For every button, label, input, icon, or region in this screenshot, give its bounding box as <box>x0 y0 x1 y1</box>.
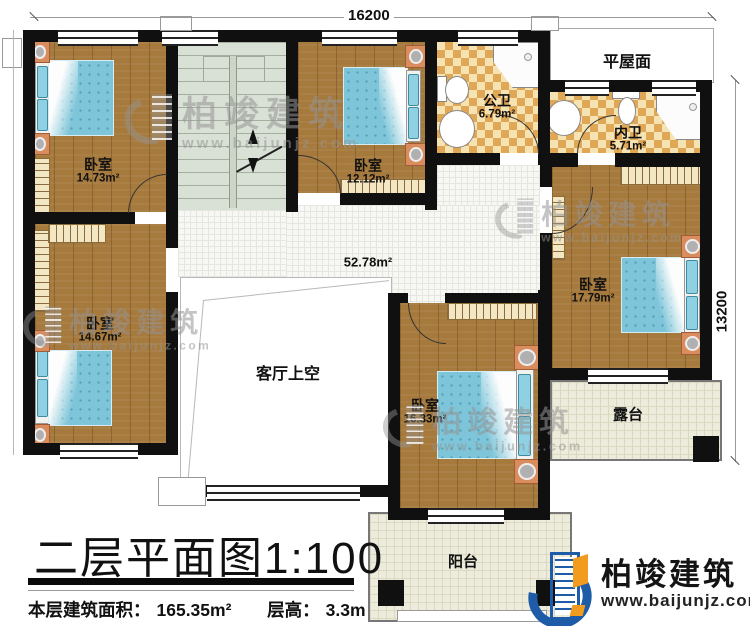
company-name: 柏竣建筑 <box>601 559 750 592</box>
room-label-bedroom-right: 卧室17.79m² <box>572 276 615 305</box>
title-rule <box>28 578 354 585</box>
flat-roof-label: 平屋面 <box>603 48 651 72</box>
room-label-bedroom-top-center: 卧室12.12m² <box>347 157 390 186</box>
pillow <box>518 374 531 414</box>
floor-height-label: 层高： <box>267 600 320 620</box>
nightstand <box>405 45 427 68</box>
bed <box>343 67 408 145</box>
wall-segment <box>388 293 400 520</box>
wall-segment <box>286 42 298 212</box>
sink-icon <box>439 110 475 148</box>
company-url: www.baijunjz.com <box>601 591 750 611</box>
pillow <box>37 379 48 417</box>
wall-segment <box>166 212 178 248</box>
wall-segment <box>445 293 550 303</box>
hallway-floor <box>437 165 540 205</box>
balcony-label: 阳台 <box>448 551 478 572</box>
stair-stringer <box>229 56 237 208</box>
bed <box>48 350 112 426</box>
window <box>458 30 518 46</box>
pillow <box>686 296 698 330</box>
wall-segment <box>286 193 298 205</box>
pillow <box>686 260 698 294</box>
wall-segment <box>340 193 437 205</box>
wardrobe <box>620 166 702 185</box>
window <box>322 30 397 46</box>
dimension-top-value: 16200 <box>344 7 394 24</box>
wall-segment <box>23 212 135 224</box>
window <box>652 80 696 96</box>
room-label-private-bath: 内卫5.71m² <box>610 124 646 153</box>
living-void-label: 客厅上空 <box>256 360 320 384</box>
company-logo: 柏竣建筑 www.baijunjz.com <box>528 552 750 618</box>
dimension-right-value: 13200 <box>713 287 730 337</box>
balcony-step <box>397 610 547 622</box>
toilet-icon <box>445 76 469 104</box>
toilet-icon <box>618 97 636 125</box>
wardrobe <box>48 224 106 243</box>
dimension-line-right <box>735 80 736 462</box>
pillow <box>408 74 419 106</box>
nightstand <box>514 459 540 484</box>
wall-segment <box>23 30 35 455</box>
floor-plan: 卧室14.73m² 卧室12.12m² 卧室14.67m² 卧室17.79m² … <box>0 0 750 626</box>
room-label-bedroom-mid-left: 卧室14.67m² <box>79 315 122 344</box>
wardrobe <box>447 303 537 320</box>
window <box>565 80 609 96</box>
room-label-bedroom-top-left: 卧室14.73m² <box>77 156 120 185</box>
window <box>60 443 138 459</box>
floor-height-value: 3.3m <box>326 600 366 620</box>
page-title: 二层平面图1:100 <box>34 522 384 586</box>
outer-line <box>13 30 14 455</box>
pillow <box>37 66 48 98</box>
wall-segment <box>166 292 178 455</box>
pillow <box>408 107 419 139</box>
wall-segment <box>540 165 552 187</box>
hallway-floor <box>178 210 286 277</box>
window <box>207 485 360 501</box>
sill-box <box>531 16 559 31</box>
wall-segment <box>540 233 552 380</box>
sill-box <box>2 38 22 68</box>
wall-segment <box>166 42 178 212</box>
window <box>58 30 138 46</box>
nightstand <box>514 345 540 370</box>
stair-arrow-down-icon <box>248 158 258 173</box>
company-logo-icon <box>528 552 592 618</box>
floor-stats: 本层建筑面积：165.35m² 层高：3.3m <box>28 597 372 622</box>
nightstand <box>405 143 427 166</box>
sliding-door <box>588 368 668 384</box>
bed <box>437 371 517 459</box>
stair-arrow-up-icon <box>248 129 258 144</box>
title-rule-thin <box>28 590 354 591</box>
sill-box <box>160 16 192 31</box>
wall-segment <box>615 153 712 167</box>
wall-segment <box>538 30 550 165</box>
terrace-label: 露台 <box>613 404 643 425</box>
hallway-floor <box>392 205 540 303</box>
bed <box>48 60 114 136</box>
pillow <box>518 416 531 456</box>
room-label-bedroom-bottom: 卧室16.33m² <box>404 397 447 426</box>
column <box>693 436 719 462</box>
sink-icon <box>547 100 581 136</box>
floor-area-value: 165.35m² <box>157 600 232 620</box>
wall-segment <box>425 30 437 210</box>
sill-box <box>158 477 206 506</box>
pillow <box>37 99 48 131</box>
wall-segment <box>700 80 712 380</box>
room-label-public-bath: 公卫6.79m² <box>479 92 515 121</box>
bed <box>621 257 685 333</box>
wall-segment <box>425 153 500 165</box>
floor-area-label: 本层建筑面积： <box>28 600 151 620</box>
hallway-area-label: 52.78m² <box>344 255 392 270</box>
window <box>162 30 218 46</box>
window <box>428 508 504 524</box>
